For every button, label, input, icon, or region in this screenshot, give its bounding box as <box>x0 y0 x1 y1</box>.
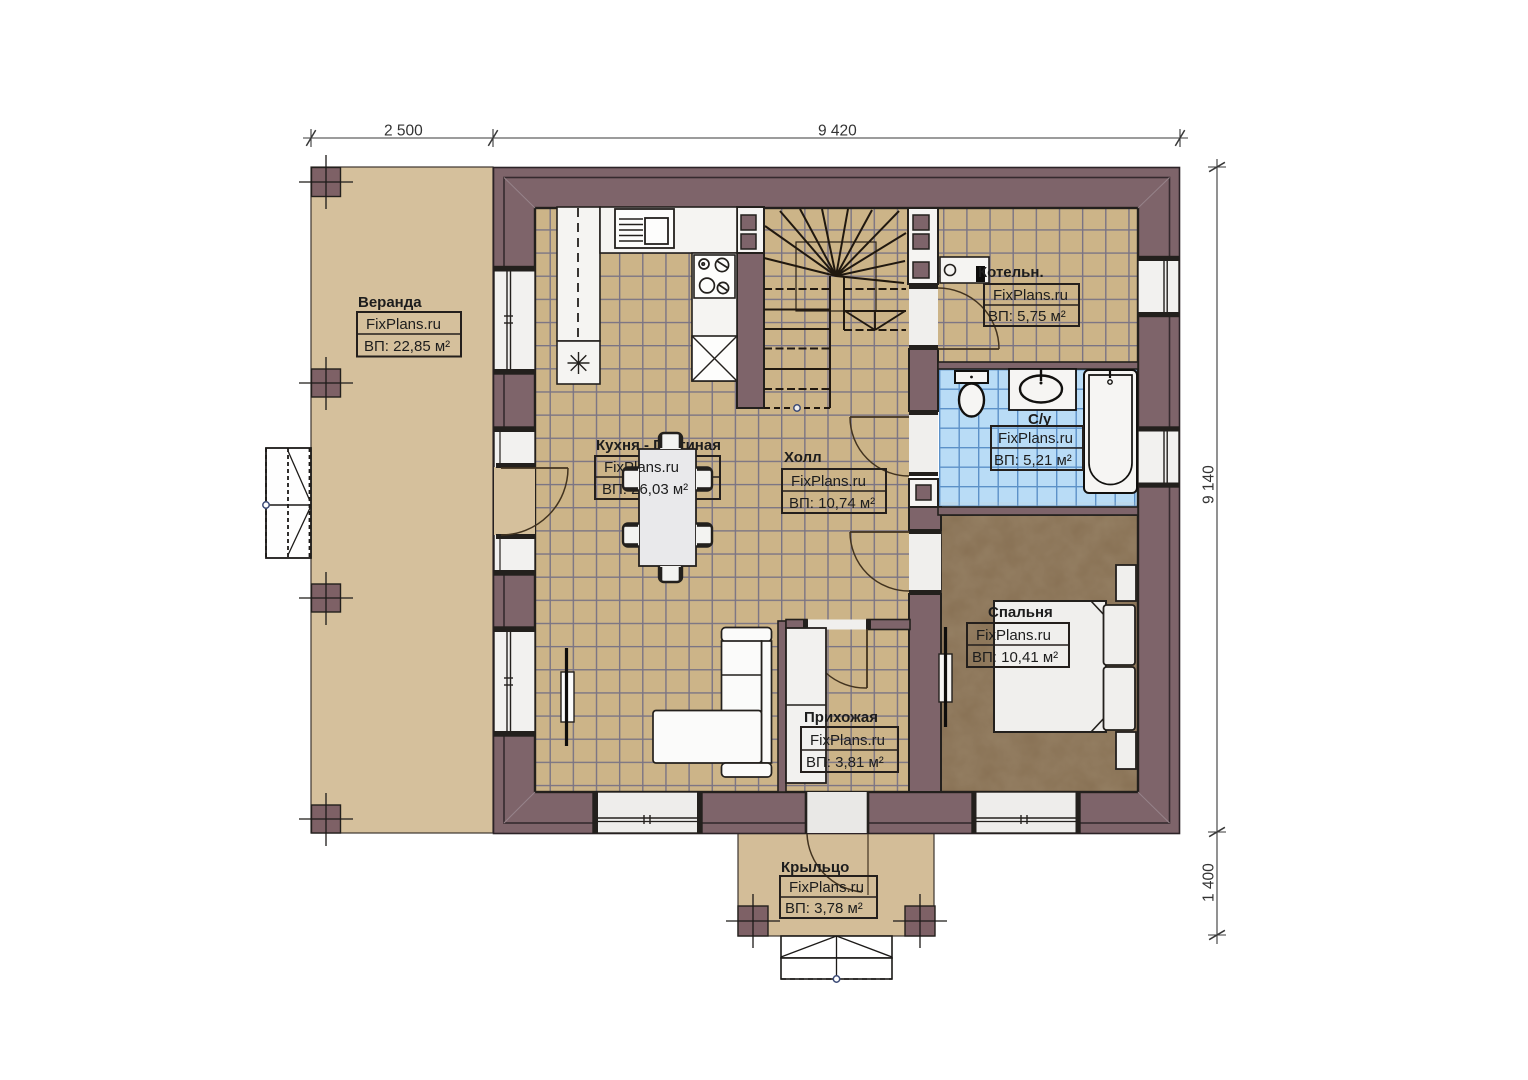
svg-text:ВП: 10,74 м²: ВП: 10,74 м² <box>789 495 875 512</box>
svg-text:9 140: 9 140 <box>1201 465 1218 504</box>
svg-text:FixPlans.ru: FixPlans.ru <box>810 732 885 749</box>
svg-text:ВП: 26,03 м²: ВП: 26,03 м² <box>602 481 688 498</box>
svg-text:ВП: 10,41 м²: ВП: 10,41 м² <box>972 649 1058 666</box>
svg-text:ВП: 5,21 м²: ВП: 5,21 м² <box>994 452 1072 469</box>
svg-text:ВП: 5,75 м²: ВП: 5,75 м² <box>988 308 1066 325</box>
svg-text:Холл: Холл <box>784 449 822 466</box>
svg-text:Прихожая: Прихожая <box>804 709 878 726</box>
svg-text:FixPlans.ru: FixPlans.ru <box>604 459 679 476</box>
svg-text:2 500: 2 500 <box>384 123 423 140</box>
svg-text:Веранда: Веранда <box>358 294 422 311</box>
svg-text:9 420: 9 420 <box>818 123 857 140</box>
svg-text:Котельн.: Котельн. <box>978 264 1044 281</box>
svg-text:FixPlans.ru: FixPlans.ru <box>998 430 1073 447</box>
svg-text:ВП: 3,78 м²: ВП: 3,78 м² <box>785 900 863 917</box>
svg-text:FixPlans.ru: FixPlans.ru <box>789 879 864 896</box>
svg-text:ВП: 22,85 м²: ВП: 22,85 м² <box>364 338 450 355</box>
svg-text:Спальня: Спальня <box>988 604 1053 621</box>
svg-text:1 400: 1 400 <box>1201 863 1218 902</box>
svg-text:FixPlans.ru: FixPlans.ru <box>366 316 441 333</box>
svg-text:Крыльцо: Крыльцо <box>781 859 849 876</box>
svg-text:FixPlans.ru: FixPlans.ru <box>976 627 1051 644</box>
svg-text:ВП: 3,81 м²: ВП: 3,81 м² <box>806 754 884 771</box>
svg-text:FixPlans.ru: FixPlans.ru <box>993 287 1068 304</box>
svg-text:FixPlans.ru: FixPlans.ru <box>791 473 866 490</box>
